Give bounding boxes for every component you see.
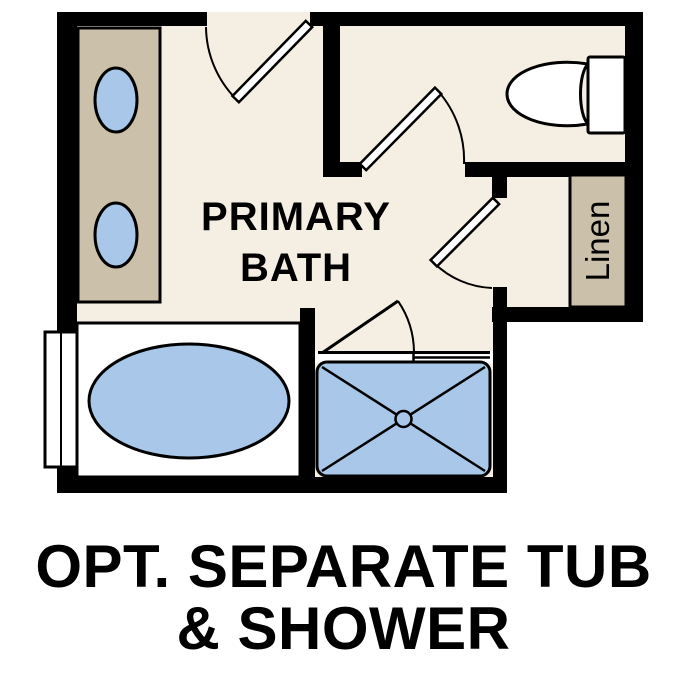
tub-basin [89, 344, 289, 458]
wall-top-left [57, 12, 207, 26]
window [45, 332, 77, 467]
floor-plan-canvas: PRIMARY BATH Linen OPT. SEPARATE TUB & S… [0, 0, 687, 687]
wall-tub-shower-divider [300, 308, 315, 493]
toilet-tank [588, 57, 625, 133]
wall-left-upper [57, 12, 77, 332]
wall-lower-right [493, 287, 507, 493]
room-label-line1: PRIMARY [146, 192, 446, 243]
wall-bottom [57, 477, 507, 493]
wall-toilet-divider [323, 26, 340, 177]
sink-bottom [95, 203, 137, 267]
plan-caption: OPT. SEPARATE TUB & SHOWER [0, 536, 687, 660]
wall-closet-stub-top [492, 173, 507, 198]
wall-toilet-divider-foot [323, 162, 362, 177]
shower-drain [396, 411, 412, 427]
room-label: PRIMARY BATH [146, 192, 446, 294]
room-label-line2: BATH [146, 243, 446, 294]
plan-caption-line1: OPT. SEPARATE TUB [0, 536, 687, 598]
sink-top [95, 68, 137, 132]
linen-label: Linen [578, 171, 618, 311]
wall-top-right [310, 12, 643, 26]
plan-caption-line2: & SHOWER [0, 598, 687, 660]
tub [77, 323, 300, 477]
wall-closet-bottom [492, 307, 643, 322]
shower [317, 362, 490, 476]
